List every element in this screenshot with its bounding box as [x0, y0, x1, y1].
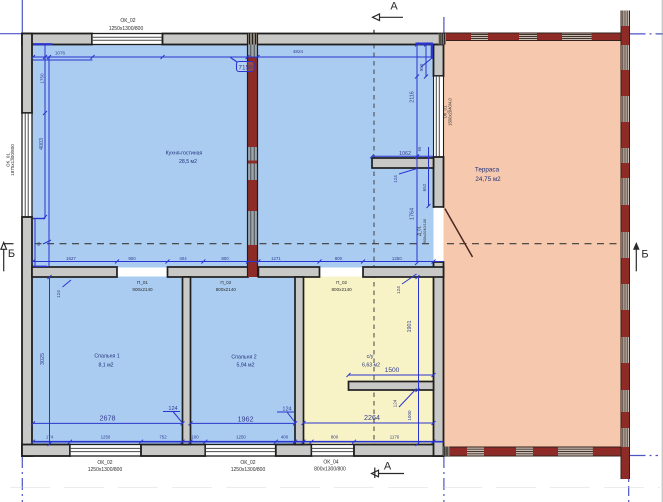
svg-text:800х2140: 800х2140 — [332, 287, 353, 292]
svg-text:900х2140: 900х2140 — [132, 287, 153, 292]
svg-text:800: 800 — [221, 256, 229, 261]
svg-text:Кухня-гостиная: Кухня-гостиная — [166, 151, 203, 157]
svg-text:7159: 7159 — [238, 65, 253, 72]
svg-text:Б: Б — [8, 248, 15, 260]
svg-text:124: 124 — [393, 175, 398, 183]
svg-text:Спальня 2: Спальня 2 — [231, 355, 256, 361]
svg-text:800х2140: 800х2140 — [216, 287, 237, 292]
svg-text:ОК_02: ОК_02 — [240, 460, 255, 466]
svg-text:1500х2040/4,0: 1500х2040/4,0 — [448, 97, 453, 125]
svg-text:1250: 1250 — [392, 256, 402, 261]
svg-text:5,94 м2: 5,94 м2 — [237, 363, 255, 369]
svg-text:1500: 1500 — [385, 367, 400, 374]
svg-text:1764: 1764 — [410, 208, 416, 220]
svg-text:28,5 м2: 28,5 м2 — [179, 159, 197, 165]
svg-text:Терраса: Терраса — [475, 167, 500, 174]
svg-text:ОК_02: ОК_02 — [120, 18, 135, 24]
svg-text:2264: 2264 — [364, 413, 380, 422]
svg-text:2116: 2116 — [410, 91, 416, 103]
svg-text:124: 124 — [396, 286, 401, 294]
svg-text:1076: 1076 — [55, 51, 66, 56]
svg-text:60: 60 — [36, 241, 41, 246]
svg-text:1901: 1901 — [407, 321, 413, 333]
svg-text:1250х1300/800: 1250х1300/800 — [88, 467, 123, 473]
svg-text:100: 100 — [191, 435, 199, 440]
svg-text:24,75 м2: 24,75 м2 — [475, 176, 501, 183]
svg-text:1250х1300/800: 1250х1300/800 — [231, 467, 266, 473]
svg-text:3025: 3025 — [40, 353, 46, 365]
svg-text:1000: 1000 — [407, 410, 412, 421]
svg-text:800: 800 — [331, 435, 339, 440]
svg-text:800х1300/800: 800х1300/800 — [314, 467, 346, 473]
svg-text:66: 66 — [417, 146, 422, 151]
svg-text:П_02: П_02 — [336, 280, 347, 285]
svg-text:752: 752 — [159, 435, 167, 440]
svg-text:1271: 1271 — [271, 256, 281, 261]
svg-text:174: 174 — [46, 435, 54, 440]
svg-text:П_01: П_01 — [137, 280, 148, 285]
svg-text:404: 404 — [179, 256, 187, 261]
svg-text:Б: Б — [641, 249, 648, 261]
svg-text:652: 652 — [422, 183, 427, 191]
svg-text:800: 800 — [335, 256, 343, 261]
svg-text:4824: 4824 — [293, 49, 304, 54]
svg-text:1250: 1250 — [236, 435, 246, 440]
svg-text:1962: 1962 — [238, 415, 254, 424]
svg-text:124: 124 — [56, 290, 61, 298]
svg-text:А: А — [384, 461, 392, 473]
svg-text:400: 400 — [281, 435, 289, 440]
svg-text:900: 900 — [128, 256, 136, 261]
svg-text:1176: 1176 — [390, 435, 400, 440]
svg-text:П_02: П_02 — [220, 280, 231, 285]
svg-text:1250х1300/800: 1250х1300/800 — [109, 26, 144, 32]
svg-text:8,1 м2: 8,1 м2 — [98, 363, 113, 369]
svg-text:Спальня 1: Спальня 1 — [94, 354, 119, 360]
svg-text:с/у: с/у — [367, 354, 374, 360]
svg-text:Д_01: Д_01 — [417, 225, 422, 235]
svg-text:4003: 4003 — [39, 138, 45, 150]
svg-text:950: 950 — [419, 63, 424, 71]
svg-text:ОК_04: ОК_04 — [323, 460, 338, 466]
svg-text:900х2040/100: 900х2040/100 — [423, 219, 427, 243]
svg-text:124: 124 — [393, 399, 398, 407]
svg-text:А: А — [390, 1, 398, 13]
svg-text:2678: 2678 — [100, 414, 116, 423]
svg-text:ОК_02: ОК_02 — [97, 460, 112, 466]
svg-text:1750: 1750 — [40, 73, 45, 84]
svg-text:1250: 1250 — [101, 435, 111, 440]
svg-text:1627: 1627 — [66, 256, 76, 261]
svg-text:1875х1300/800: 1875х1300/800 — [10, 144, 15, 176]
svg-text:6,63 м2: 6,63 м2 — [362, 363, 380, 369]
svg-text:1062: 1062 — [399, 151, 411, 157]
